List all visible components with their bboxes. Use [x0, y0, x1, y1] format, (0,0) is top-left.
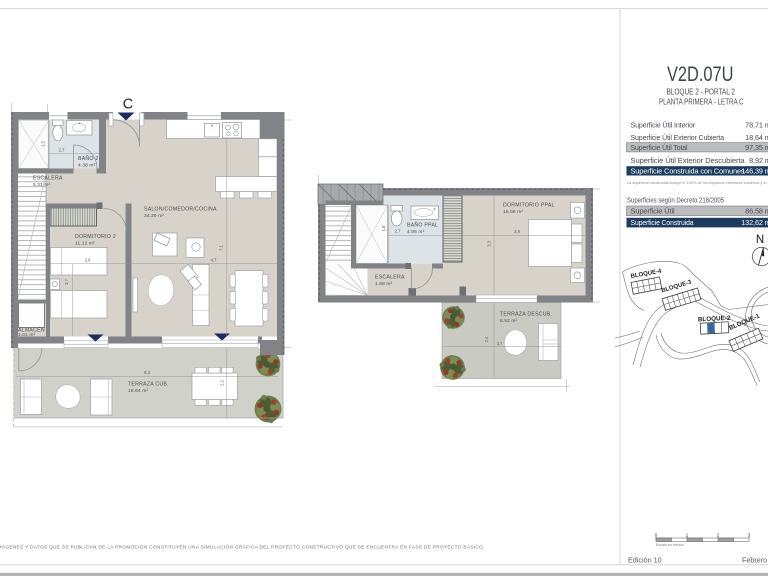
svg-text:1,5: 1,5	[41, 140, 46, 146]
svg-text:2,2: 2,2	[219, 379, 224, 385]
svg-text:34.29 m²: 34.29 m²	[144, 213, 164, 219]
svg-text:BAÑO PPAL: BAÑO PPAL	[407, 222, 438, 229]
svg-text:5.31 m²: 5.31 m²	[33, 182, 51, 188]
svg-text:2,7: 2,7	[59, 148, 65, 153]
svg-text:Escala en metros: Escala en metros	[656, 543, 684, 547]
svg-text:N: N	[756, 234, 764, 246]
svg-text:97,35 m²: 97,35 m²	[745, 143, 768, 152]
svg-text:86,58 m²: 86,58 m²	[745, 206, 768, 215]
svg-text:Febrero 2025: Febrero 2025	[742, 555, 768, 564]
svg-text:ESCALERA: ESCALERA	[375, 275, 405, 281]
svg-text:8.92 m²: 8.92 m²	[500, 318, 518, 324]
svg-text:11.12 m²: 11.12 m²	[75, 241, 95, 247]
svg-text:Superficie Útil Exterior Descu: Superficie Útil Exterior Descubierta	[631, 156, 746, 165]
svg-text:1,8: 1,8	[381, 225, 386, 231]
svg-text:Superficie Útil Total: Superficie Útil Total	[631, 143, 688, 152]
svg-text:2,8: 2,8	[85, 257, 91, 262]
svg-text:2,4: 2,4	[484, 336, 489, 342]
svg-text:4,7: 4,7	[211, 257, 217, 262]
svg-text:DORMITORIO 2: DORMITORIO 2	[75, 234, 116, 240]
svg-text:TERRAZA CUB.: TERRAZA CUB.	[128, 382, 169, 388]
svg-text:8,3: 8,3	[144, 370, 150, 375]
svg-text:V2D.07U: V2D.07U	[667, 63, 734, 86]
svg-text:18.64 m²: 18.64 m²	[128, 388, 148, 394]
svg-text:1.01 m²: 1.01 m²	[18, 332, 36, 338]
svg-text:3,3: 3,3	[486, 240, 491, 246]
svg-text:Superficie Útil Interior: Superficie Útil Interior	[631, 120, 696, 129]
svg-text:IMÁGENES Y DATOS QUE SE PUBLIC: IMÁGENES Y DATOS QUE SE PUBLICAN DE LA P…	[0, 544, 483, 550]
svg-text:7,1: 7,1	[218, 244, 223, 250]
svg-text:1.68 m²: 1.68 m²	[375, 281, 393, 287]
svg-text:BLOQUE 2 - PORTAL 2: BLOQUE 2 - PORTAL 2	[667, 88, 736, 97]
svg-text:Superficies según Decreto 218/: Superficies según Decreto 218/2005	[627, 195, 724, 204]
svg-text:La superficie construida inclu: La superficie construida incluye el 100%…	[627, 180, 768, 185]
svg-text:Superficie Construida: Superficie Construida	[631, 218, 695, 227]
svg-text:2,7: 2,7	[395, 229, 401, 234]
svg-text:SALON/COMEDOR/COCINA: SALON/COMEDOR/COCINA	[144, 207, 217, 213]
svg-text:Edición 10: Edición 10	[628, 555, 662, 564]
svg-text:4.38 m²: 4.38 m²	[78, 163, 96, 169]
svg-text:DORMITORIO PPAL: DORMITORIO PPAL	[503, 203, 555, 209]
svg-text:ESCALERA: ESCALERA	[33, 176, 63, 182]
svg-text:18,64 m²: 18,64 m²	[745, 133, 768, 142]
svg-text:Superficie Construida con Comu: Superficie Construida con Comunes	[631, 166, 745, 175]
svg-text:3,9: 3,9	[514, 229, 520, 234]
svg-text:C: C	[123, 97, 133, 113]
svg-text:TERRAZA DESCUB.: TERRAZA DESCUB.	[500, 312, 552, 318]
svg-text:3,7: 3,7	[64, 278, 69, 284]
svg-text:PLANTA PRIMERA - LETRA C: PLANTA PRIMERA - LETRA C	[659, 98, 744, 107]
svg-text:3,7: 3,7	[497, 341, 503, 346]
svg-text:BAÑO 2: BAÑO 2	[78, 155, 99, 162]
svg-text:4.86 m²: 4.86 m²	[407, 229, 425, 235]
svg-text:Superficie Útil Exterior Cubie: Superficie Útil Exterior Cubierta	[631, 133, 726, 142]
svg-text:Superficie Útil: Superficie Útil	[631, 206, 676, 215]
svg-text:16.06 m²: 16.06 m²	[503, 209, 523, 215]
svg-text:132,62 m²: 132,62 m²	[741, 218, 768, 227]
svg-text:8,92 m²: 8,92 m²	[749, 156, 768, 165]
svg-text:146,39 m²: 146,39 m²	[741, 166, 768, 175]
svg-text:78,71 m²: 78,71 m²	[745, 120, 768, 129]
